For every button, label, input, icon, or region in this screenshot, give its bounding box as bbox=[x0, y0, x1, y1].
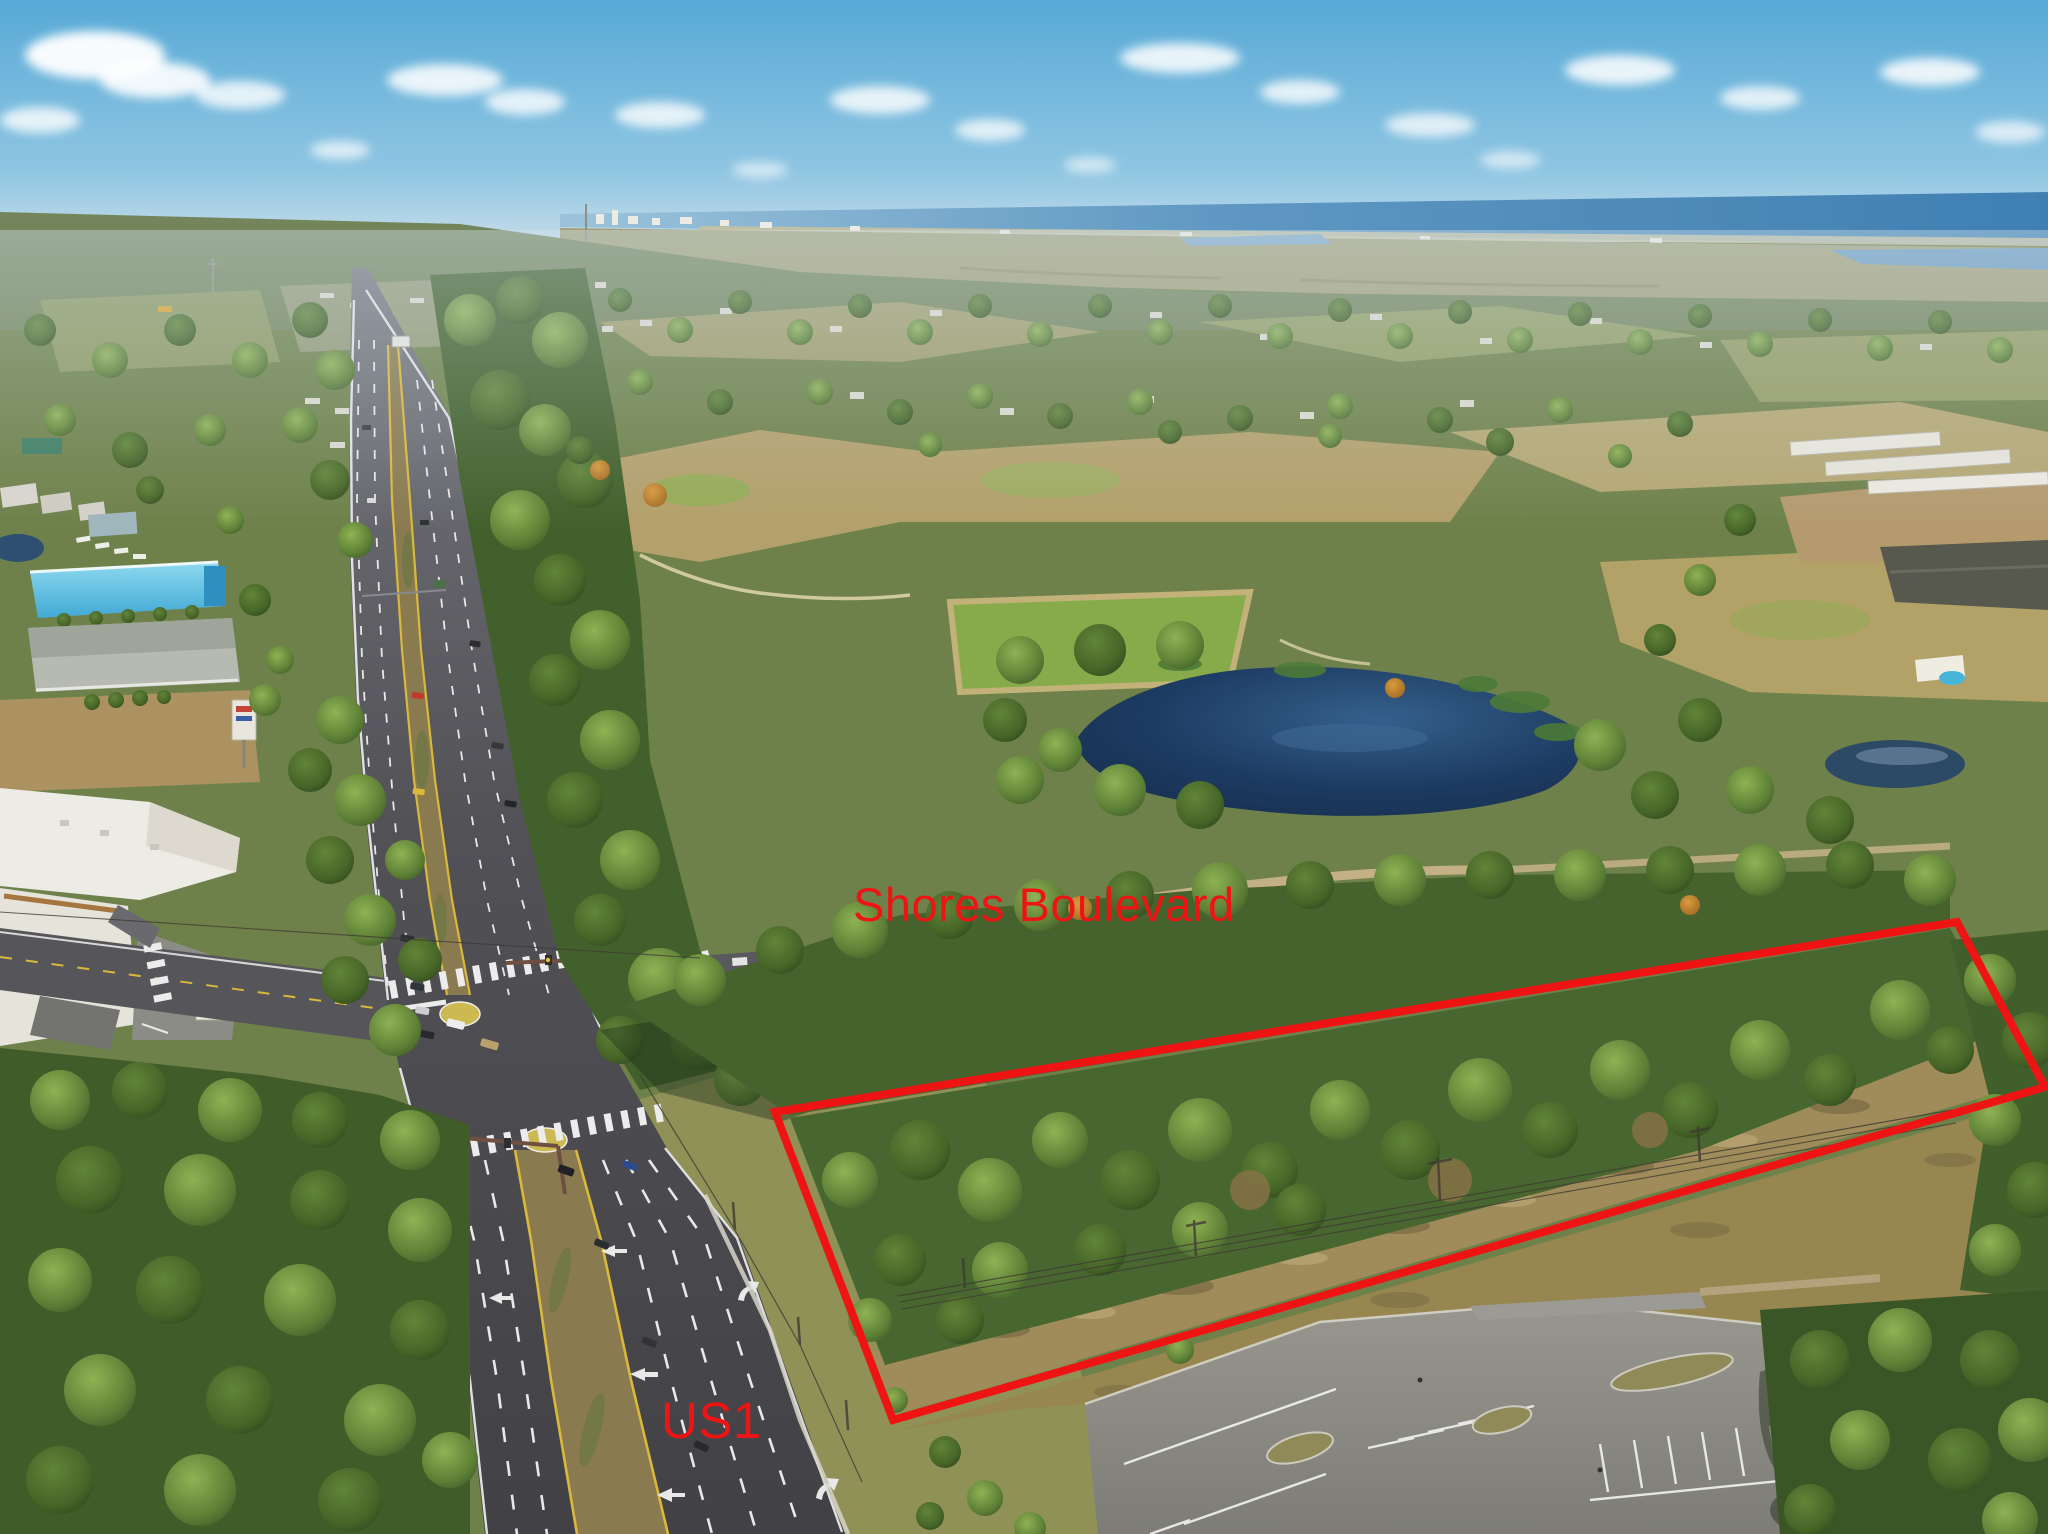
aerial-photo: Shores Boulevard US1 bbox=[0, 0, 2048, 1534]
forest-left-bottom bbox=[0, 1048, 478, 1534]
bottom-right-trees bbox=[1760, 1290, 2048, 1534]
gray-warehouse bbox=[28, 618, 240, 692]
street-label: Shores Boulevard bbox=[853, 878, 1235, 931]
highway-label: US1 bbox=[661, 1392, 762, 1449]
blue-warehouse bbox=[30, 562, 226, 627]
dirt-yard bbox=[0, 690, 260, 792]
distance-haze bbox=[0, 230, 2048, 530]
pond-right bbox=[1825, 740, 1965, 788]
aerial-photo-canvas: Shores Boulevard US1 bbox=[0, 0, 2048, 1534]
